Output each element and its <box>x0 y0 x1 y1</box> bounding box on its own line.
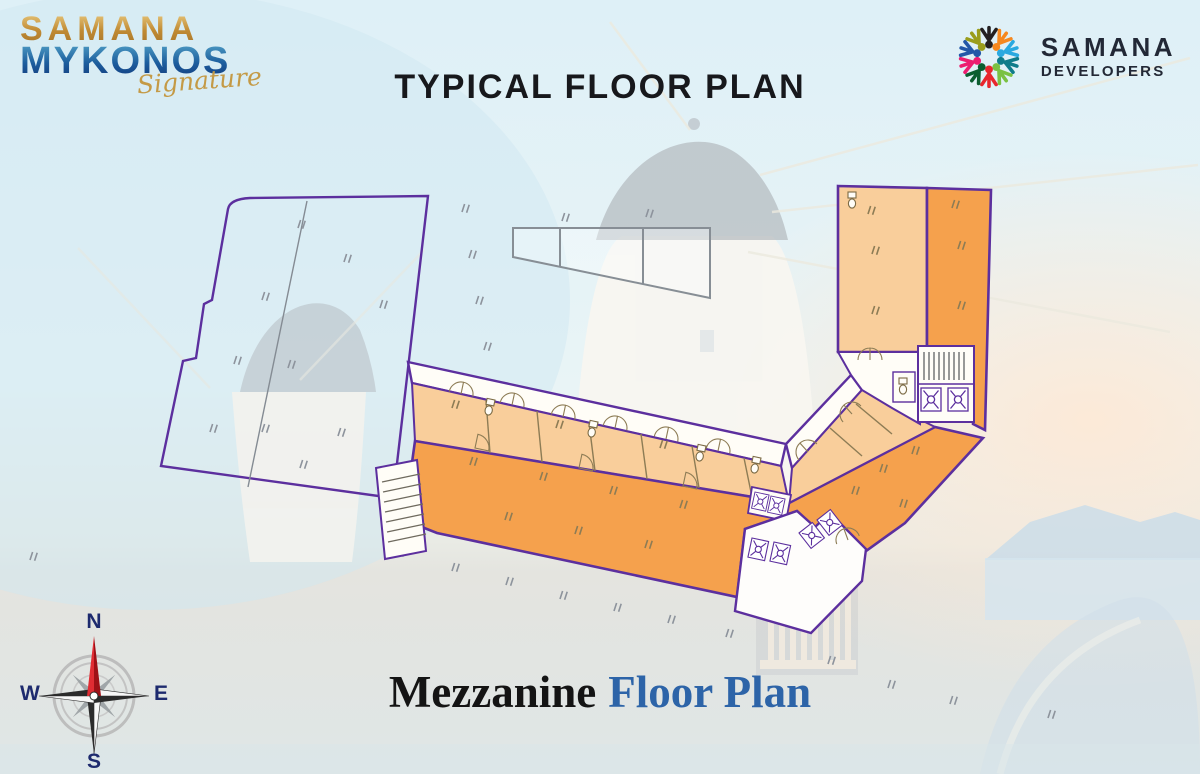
elevator-icon <box>748 538 769 561</box>
west-needle <box>39 689 94 703</box>
floor-name-title: MezzanineFloor Plan <box>0 666 1200 718</box>
floor-name-blue: Floor Plan <box>608 667 811 717</box>
north-needle <box>87 636 101 696</box>
compass-rose: N E S W <box>14 610 174 774</box>
south-needle <box>87 696 101 754</box>
compass-east-label: E <box>154 682 168 706</box>
scene-canvas <box>0 0 1200 774</box>
background-photo <box>0 0 1200 774</box>
developer-logo-text: SAMANA DEVELOPERS <box>1041 34 1176 80</box>
east-needle <box>94 689 149 703</box>
right-block-unit-light <box>838 186 927 352</box>
elevator-icon <box>770 542 791 565</box>
developer-subtitle: DEVELOPERS <box>1041 64 1176 80</box>
toilet-icon <box>848 192 856 208</box>
elevator-icon <box>921 388 941 411</box>
elevator-icon <box>768 496 786 515</box>
toilet-icon <box>899 378 907 394</box>
elevator-icon <box>752 492 770 511</box>
floor-plan-slide: SAMANA MYKONOS Signature TYPICAL FLOOR P… <box>0 0 1200 774</box>
left-stair-core <box>376 460 426 559</box>
compass-west-label: W <box>20 682 40 706</box>
right-core <box>918 346 974 422</box>
developer-logo: SAMANA DEVELOPERS <box>949 14 1176 100</box>
elevator-icon <box>948 388 968 411</box>
floor-name-dark: Mezzanine <box>389 667 596 717</box>
developer-name: SAMANA <box>1041 34 1176 61</box>
compass-north-label: N <box>86 610 101 634</box>
sea-band <box>985 558 1200 620</box>
compass-south-label: S <box>87 750 101 774</box>
developer-burst-icon <box>949 14 1029 100</box>
